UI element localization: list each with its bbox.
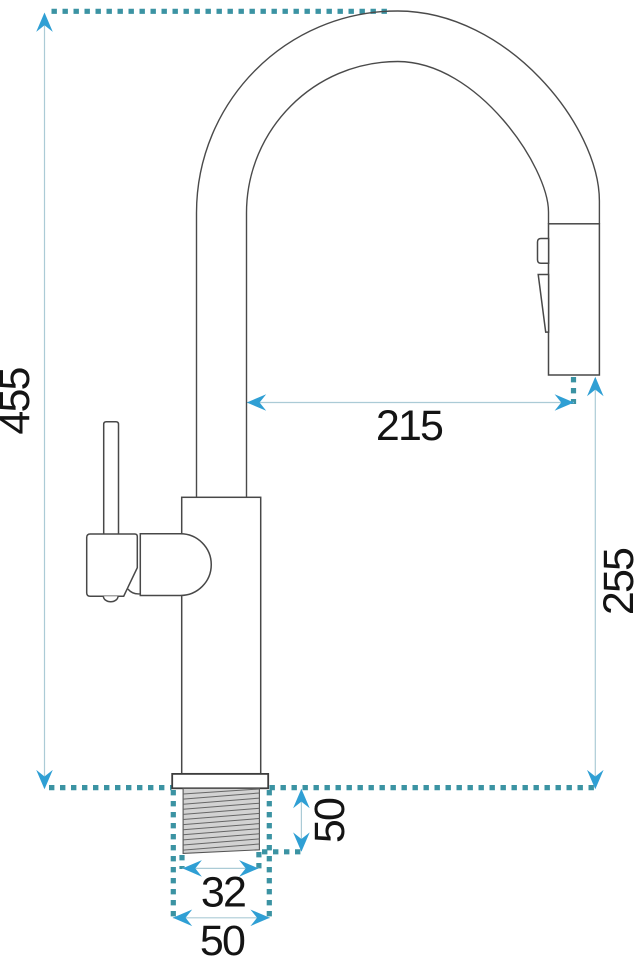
- svg-text:455: 455: [0, 367, 39, 434]
- svg-text:50: 50: [306, 798, 354, 843]
- svg-text:215: 215: [376, 402, 443, 450]
- svg-text:255: 255: [595, 548, 637, 615]
- svg-text:32: 32: [201, 869, 245, 917]
- svg-text:50: 50: [200, 917, 245, 958]
